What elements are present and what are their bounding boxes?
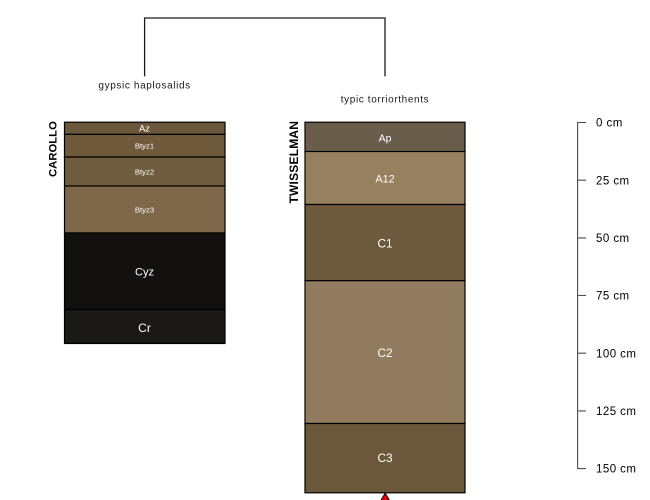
- svg-text:A12: A12: [375, 174, 394, 186]
- svg-text:Cr: Cr: [138, 321, 151, 335]
- svg-text:Btyz3: Btyz3: [135, 205, 154, 214]
- svg-text:Btyz2: Btyz2: [135, 167, 154, 176]
- svg-text:C1: C1: [377, 237, 392, 251]
- svg-text:Az: Az: [139, 123, 150, 134]
- svg-text:Btyz1: Btyz1: [135, 141, 154, 150]
- svg-text:TWISSELMAN: TWISSELMAN: [287, 121, 301, 204]
- svg-text:typic torriorthents: typic torriorthents: [341, 95, 429, 106]
- svg-text:C2: C2: [377, 346, 392, 360]
- svg-text:CAROLLO: CAROLLO: [48, 121, 60, 177]
- svg-text:Ap: Ap: [379, 134, 392, 145]
- svg-text:Cyz: Cyz: [135, 267, 154, 279]
- svg-text:gypsic haplosalids: gypsic haplosalids: [98, 81, 190, 92]
- svg-text:100 cm: 100 cm: [596, 348, 636, 360]
- svg-text:150 cm: 150 cm: [596, 464, 636, 476]
- svg-text:25 cm: 25 cm: [596, 175, 630, 187]
- svg-text:50 cm: 50 cm: [596, 233, 630, 245]
- svg-text:0 cm: 0 cm: [596, 118, 623, 130]
- svg-text:75 cm: 75 cm: [596, 291, 630, 303]
- svg-text:125 cm: 125 cm: [596, 406, 636, 418]
- svg-text:C3: C3: [377, 451, 393, 465]
